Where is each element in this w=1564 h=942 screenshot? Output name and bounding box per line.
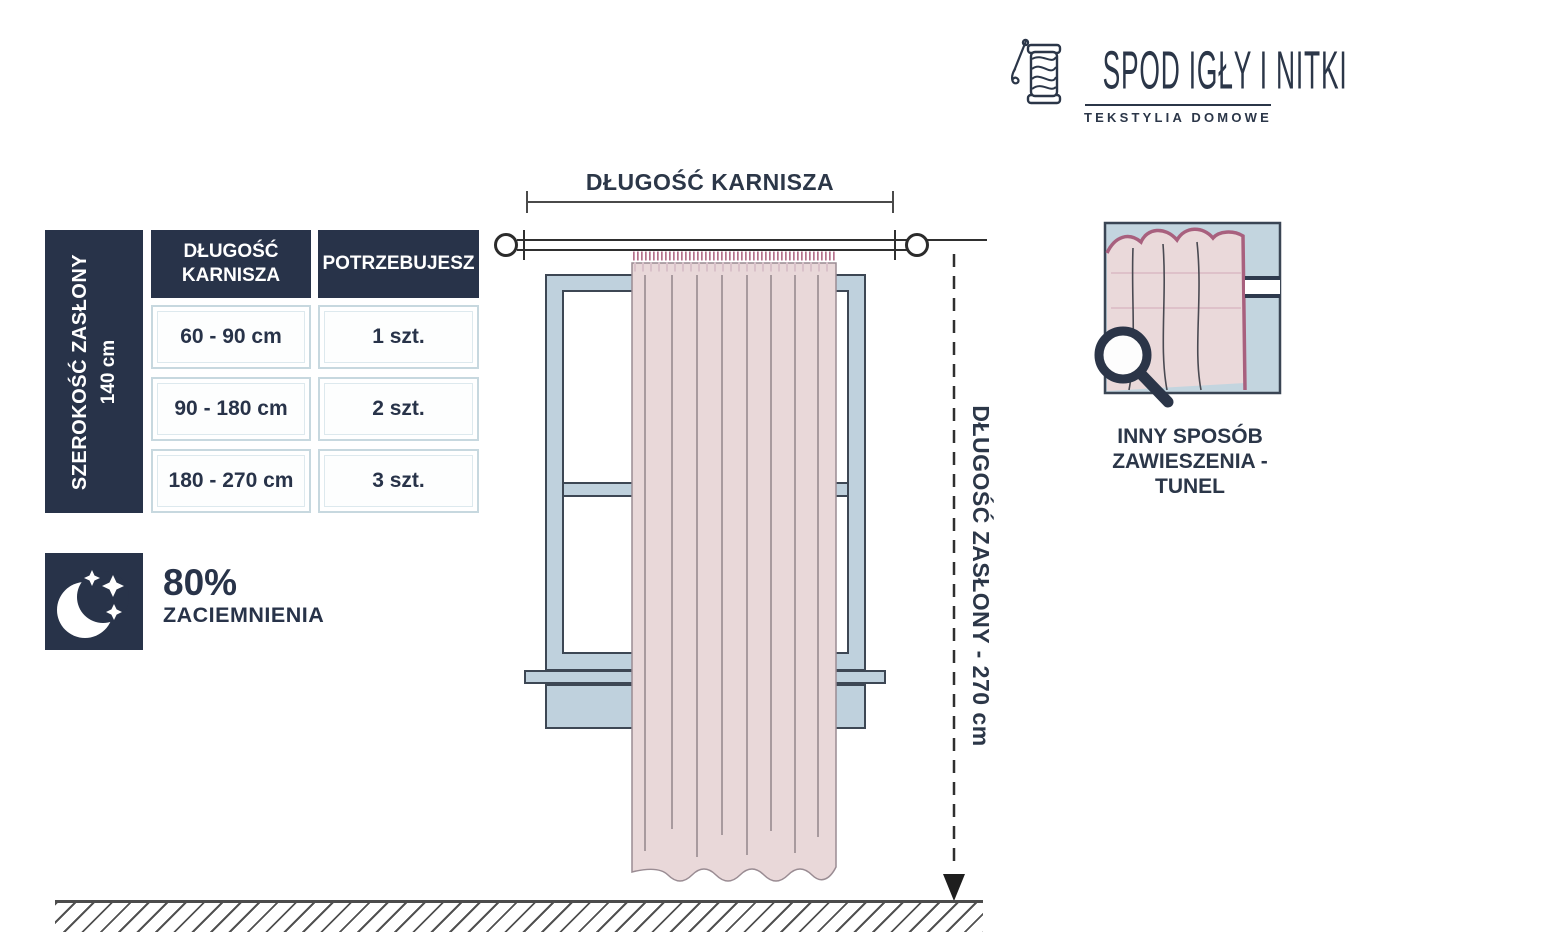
tunnel-hanging-caption: INNY SPOSÓB ZAWIESZENIA - TUNEL	[1080, 424, 1300, 500]
table-cell-qty-3: 3 szt.	[318, 449, 479, 513]
thumbnail-rod-pocket	[1245, 278, 1280, 296]
curtain-width-side-bar: SZEROKOŚĆ ZASŁONY 140 cm	[45, 230, 143, 513]
measure-tick-left	[526, 191, 528, 213]
table-cell-qty-1: 1 szt.	[318, 305, 479, 369]
table-cell-range-2: 90 - 180 cm	[151, 377, 311, 441]
moon-and-stars-icon	[45, 553, 143, 650]
curtain-body	[632, 263, 836, 881]
table-header-rod-length: DŁUGOŚĆ KARNISZA	[151, 230, 311, 298]
tunnel-hanging-thumbnail	[1085, 218, 1290, 418]
needle-and-yarn-spool-icon	[1008, 33, 1068, 109]
curtain-length-measure-line	[940, 248, 970, 908]
curtain-length-title: DŁUGOŚĆ ZASŁONY - 270 cm	[968, 376, 994, 776]
rod-length-title: DŁUGOŚĆ KARNISZA	[510, 169, 910, 196]
brand-subtitle: TEKSTYLIA DOMOWE	[1072, 110, 1284, 125]
table-cell-range-1: 60 - 90 cm	[151, 305, 311, 369]
table-cell-qty-2: 2 szt.	[318, 377, 479, 441]
brand-title: SPOD IGŁY I NITKI	[1072, 40, 1322, 102]
curtain-width-value: 140 cm	[98, 339, 120, 403]
rod-finial-right	[905, 233, 929, 257]
curtain-drawing	[630, 251, 838, 897]
table-cell-range-3: 180 - 270 cm	[151, 449, 311, 513]
table-header-you-need: POTRZEBUJESZ	[318, 230, 479, 298]
rod-finial-left	[494, 233, 518, 257]
rod-bracket-right	[894, 230, 896, 260]
blackout-label: ZACIEMNIENIA	[163, 603, 324, 628]
logo-divider	[1085, 104, 1271, 106]
rod-length-measure-line	[527, 201, 894, 203]
measure-tick-right	[892, 191, 894, 213]
rod-bracket-left	[523, 230, 525, 260]
curtain-width-label: SZEROKOŚĆ ZASŁONY	[69, 253, 92, 489]
floor-hatching	[55, 903, 983, 932]
blackout-percentage: 80%	[163, 562, 237, 604]
down-arrow-icon	[943, 874, 965, 901]
curtain-rod-bottom-line	[517, 249, 907, 251]
